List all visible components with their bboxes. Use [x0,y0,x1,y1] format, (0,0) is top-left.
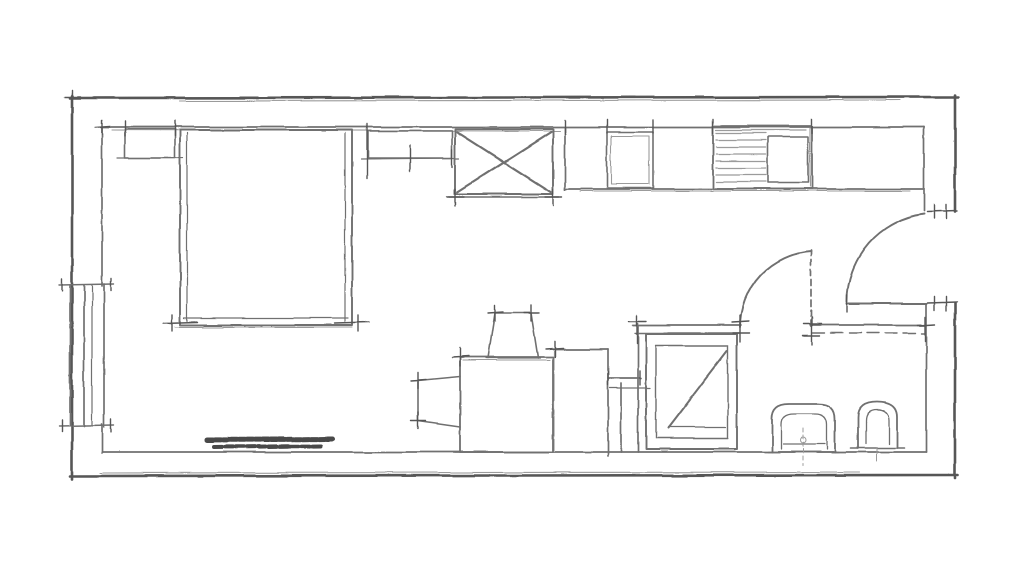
tick-entry-jamb-top [927,205,957,219]
washer-box [607,132,653,188]
floor-plan-page [0,0,1024,576]
chair-top-left-side [488,313,495,358]
stove-unit-box [713,126,812,189]
outer-wall-top-sketch [180,100,900,101]
desk-box [460,357,553,452]
window-sill-top [59,284,114,285]
chair-top-right-side [531,313,538,358]
layer-furniture [117,129,553,452]
chair-left-bottom [418,421,460,427]
tick-chair-left-bottom [411,413,426,429]
tick-bathroom-wall-left-end [629,315,646,343]
layer-kitchen-fixtures [449,126,812,197]
floor-plan-drawing [59,90,958,479]
washer-inner-box [611,136,649,184]
entry-door-swing-arc [847,214,924,302]
outer-wall-bottom [70,475,958,476]
tick-outer-corner-topleft [65,90,80,104]
rug-scribble-row-2 [214,446,321,447]
tick-entry-jamb-bottom [927,296,957,311]
shower-inner-box [656,346,728,438]
stove-unit-inner-square [768,137,808,183]
bed-outline [180,130,352,325]
shower-outer-box [646,334,737,449]
sink-inner [866,410,889,444]
tick-wardrobe-corner-right [545,189,562,206]
nightstand-box [125,129,175,158]
layer-inner-walls [101,127,926,456]
layer-tick-marks [62,90,957,432]
tick-bathroom-door-jamb-right [803,317,821,345]
window-sill-bottom [59,425,114,426]
outer-wall-bottom-sketch [100,472,860,473]
outer-wall-top [70,97,958,98]
layer-outer-walls [70,95,958,479]
tick-chair-top-right [524,305,539,321]
sink-outer [858,402,897,448]
rug-scribble-row-1 [207,439,332,440]
layer-openings [59,214,926,427]
shower-diagonal [668,351,727,428]
layer-bathroom-fixtures [646,334,904,465]
bathroom-door-swing-arc [740,251,811,327]
floor-plan-svg [0,0,1024,576]
tick-wardrobe-corner-left [447,189,464,206]
